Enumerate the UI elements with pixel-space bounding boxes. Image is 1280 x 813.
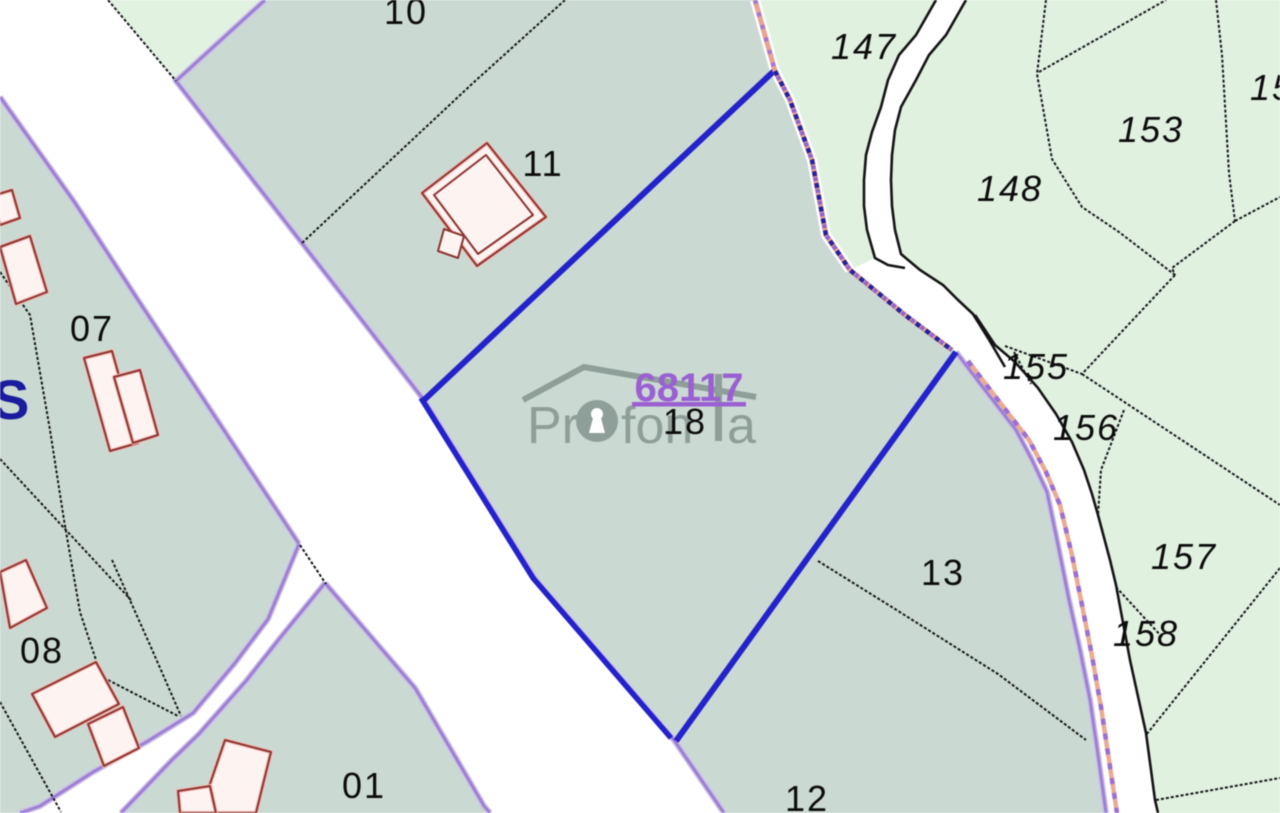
svg-text:07: 07 [70,308,114,349]
svg-text:154: 154 [1250,67,1280,108]
svg-text:13: 13 [921,552,965,593]
svg-text:158: 158 [1113,613,1179,654]
svg-text:148: 148 [977,168,1043,209]
svg-text:156: 156 [1053,407,1119,448]
svg-text:12: 12 [785,778,829,813]
svg-text:S: S [0,368,29,431]
svg-text:11: 11 [522,143,563,184]
svg-text:157: 157 [1151,536,1217,577]
svg-text:10: 10 [384,0,428,32]
svg-text:147: 147 [831,26,897,67]
svg-text:155: 155 [1003,346,1069,387]
svg-text:08: 08 [20,630,64,671]
svg-text:Pr: Pr [527,397,579,455]
svg-text:18: 18 [663,401,707,442]
svg-text:01: 01 [342,765,386,806]
svg-text:153: 153 [1118,109,1184,150]
